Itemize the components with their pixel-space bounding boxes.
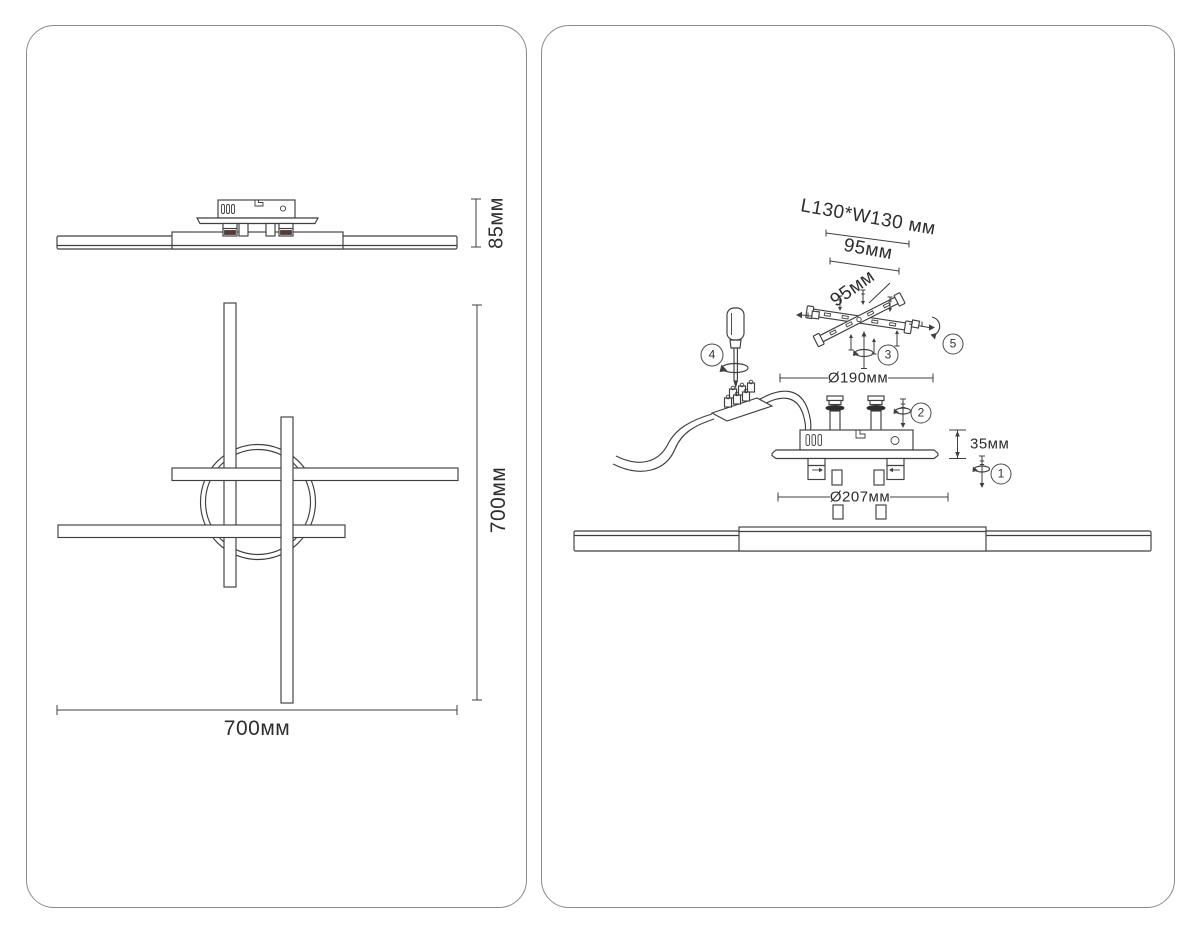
- plan-width-label: 700мм: [224, 717, 290, 741]
- base-diameter-label: Ø207мм: [830, 489, 890, 506]
- step-badge-3: 3: [878, 345, 899, 366]
- plan-height-label: 700мм: [487, 467, 511, 533]
- step-badge-4: 4: [701, 344, 724, 367]
- installation-panel: [541, 25, 1175, 908]
- step-badge-1: 1: [991, 464, 1012, 485]
- product-dimension-sheet: 85мм 700мм 700мм L130*W130 мм 95мм 95мм …: [0, 0, 1200, 933]
- canopy-diameter-label: Ø190мм: [828, 370, 888, 387]
- step-badge-5: 5: [943, 334, 964, 355]
- side-height-label: 85мм: [486, 197, 509, 249]
- step-badge-2: 2: [911, 403, 932, 424]
- dimensions-panel: [26, 25, 527, 908]
- canopy-height-label: 35мм: [970, 436, 1009, 453]
